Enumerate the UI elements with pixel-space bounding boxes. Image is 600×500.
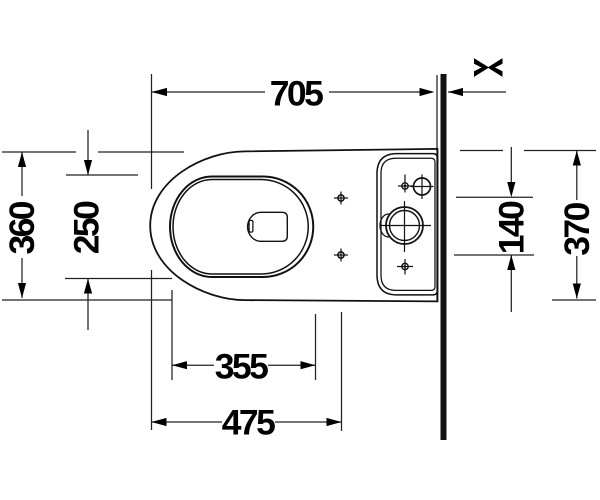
svg-text:250: 250 bbox=[67, 201, 107, 254]
svg-text:475: 475 bbox=[222, 403, 275, 443]
svg-text:705: 705 bbox=[270, 74, 323, 114]
svg-text:370: 370 bbox=[557, 202, 597, 255]
svg-text:140: 140 bbox=[492, 201, 532, 254]
svg-text:355: 355 bbox=[215, 347, 268, 387]
svg-text:360: 360 bbox=[2, 201, 42, 254]
